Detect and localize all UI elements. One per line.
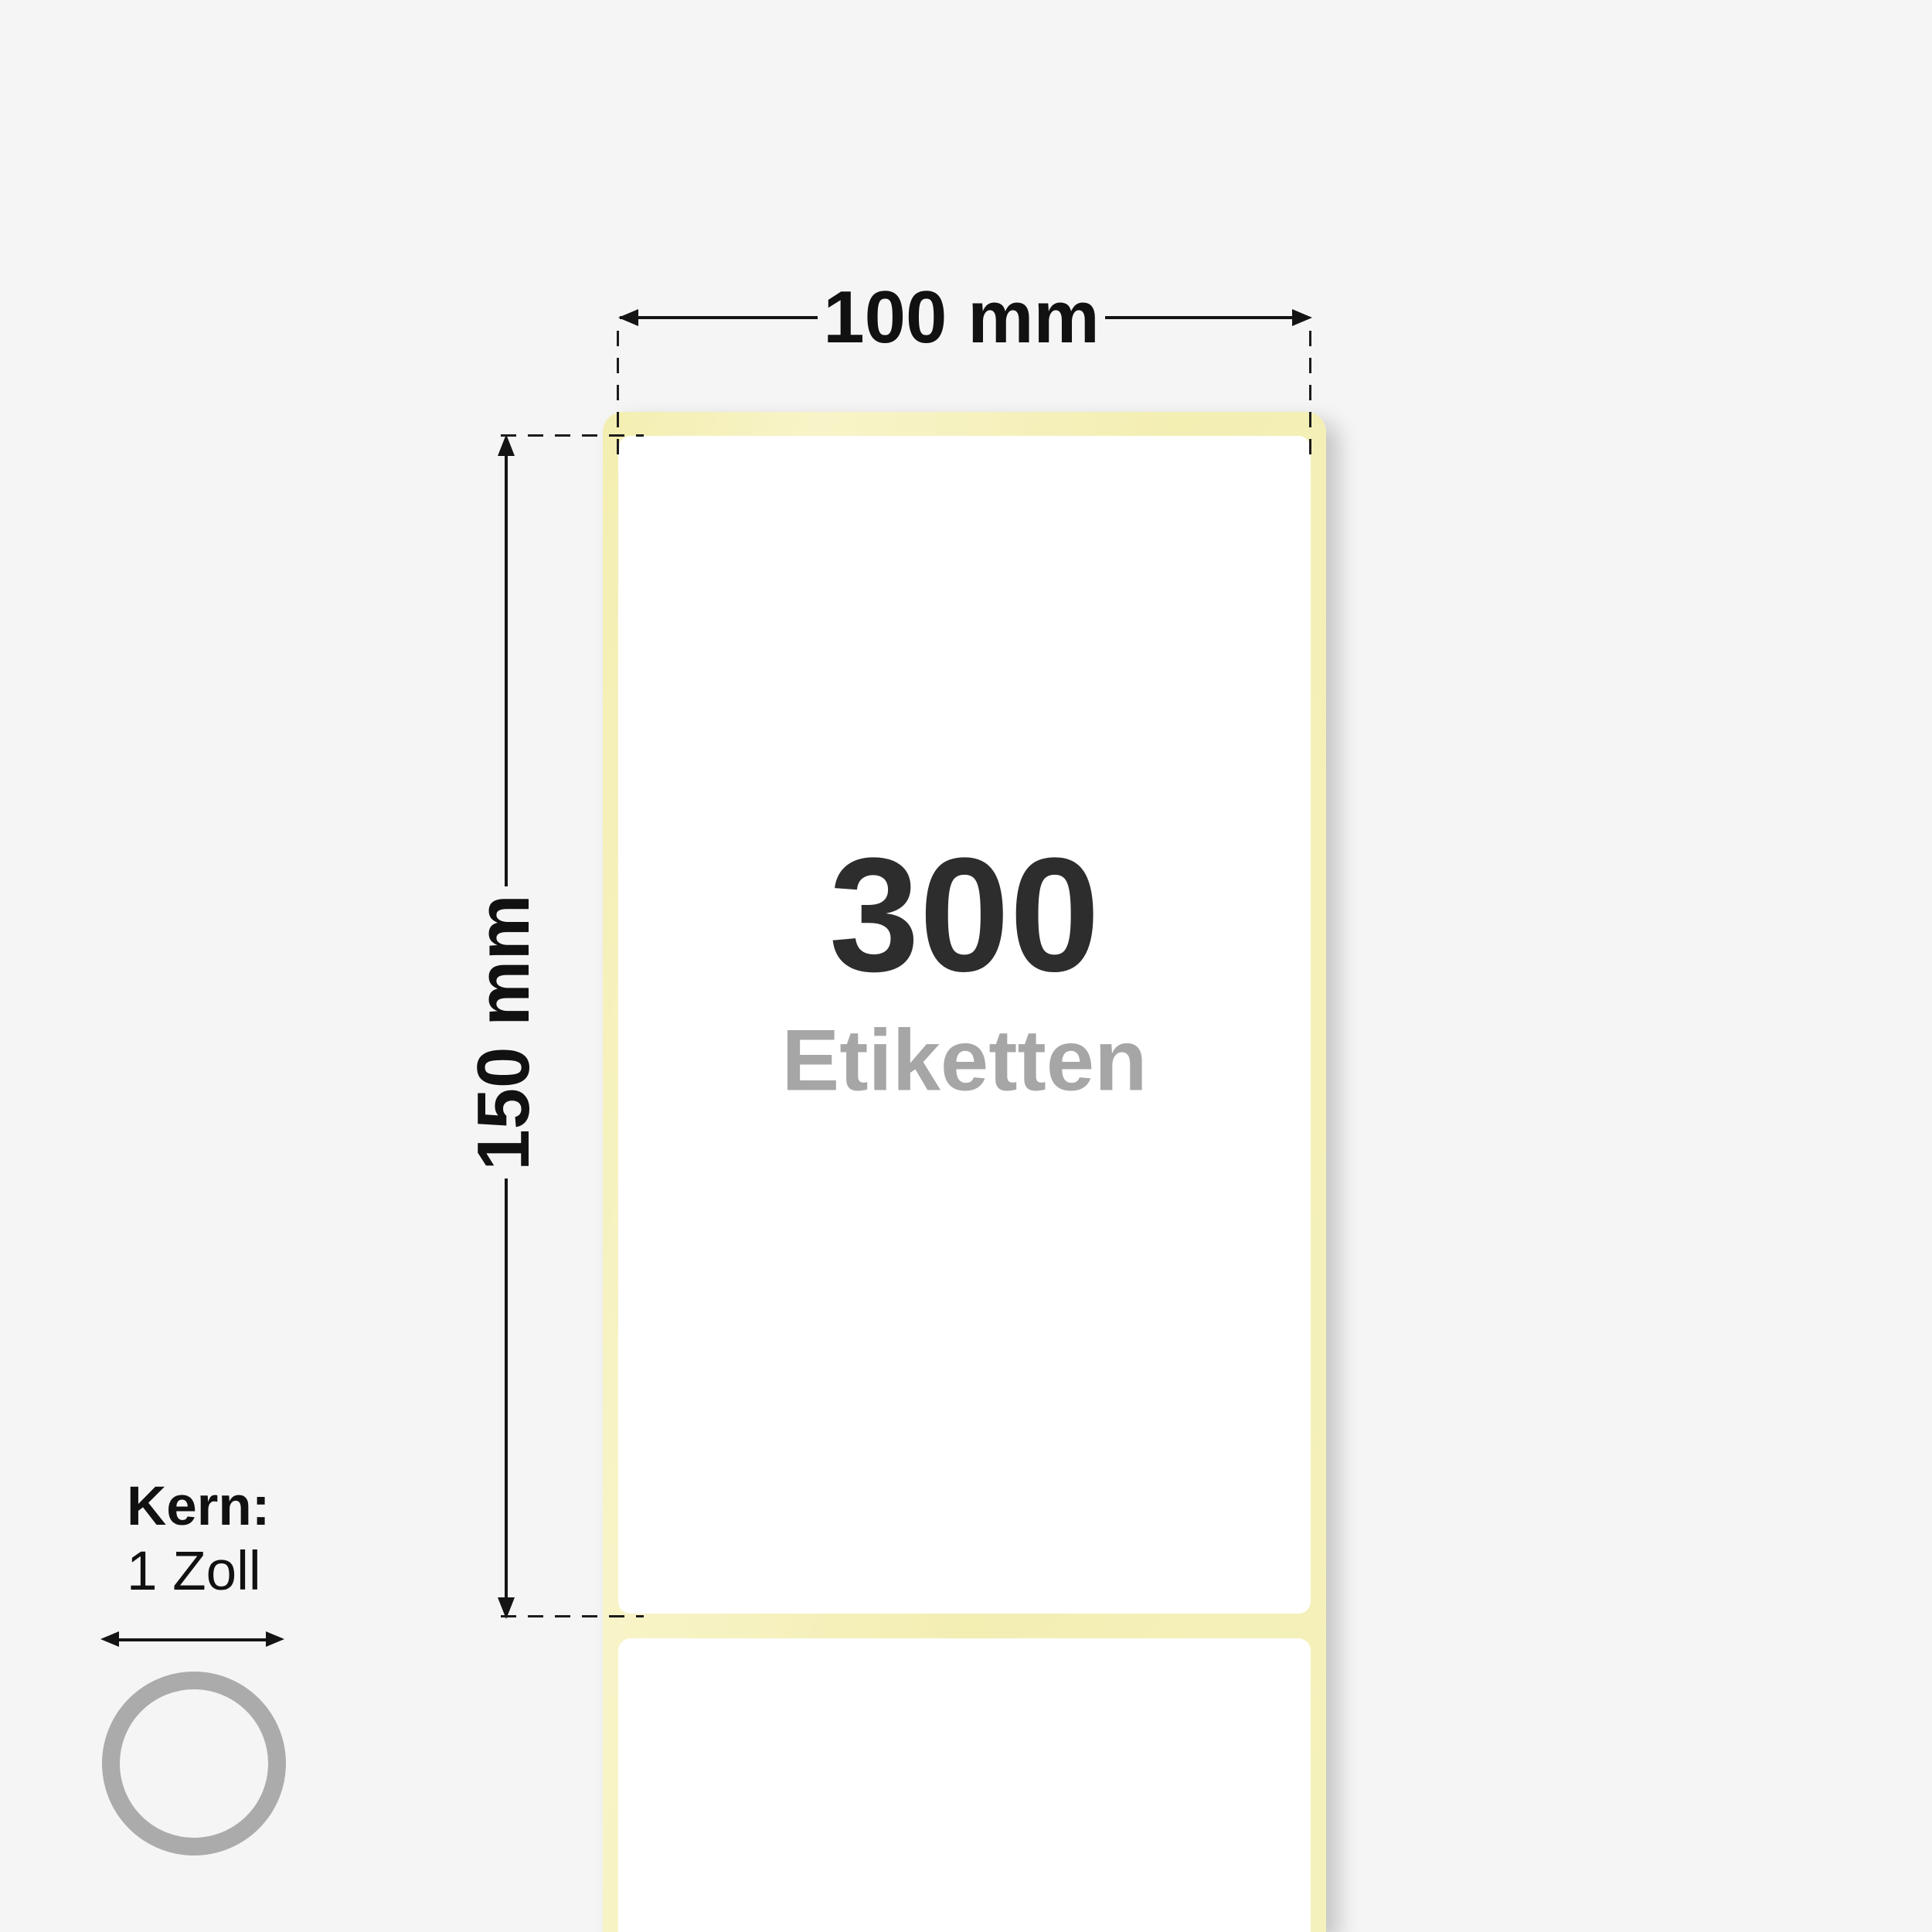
height-dimension-label: 150 mm [461, 894, 546, 1171]
width-arrow-right-icon [1292, 309, 1312, 326]
width-dimension-line-right [1105, 316, 1292, 319]
core-arrow-left-icon [100, 1631, 119, 1647]
core-size: 1 Zoll [127, 1539, 270, 1604]
label-front: 300 Etiketten [618, 436, 1311, 1614]
width-dimension-line-left [620, 316, 818, 319]
width-dimension-label: 100 mm [823, 275, 1100, 360]
core-ring-icon [102, 1672, 286, 1855]
height-arrow-up-icon [498, 434, 515, 456]
width-extension-line-right [1309, 331, 1311, 457]
core-label: Kern: 1 Zoll [127, 1475, 270, 1604]
core-diameter-line [116, 1638, 269, 1641]
label-count: 300 [829, 821, 1100, 1009]
width-extension-line-left [617, 331, 619, 457]
label-count-word: Etiketten [782, 1011, 1148, 1111]
height-dimension-line-top [505, 451, 508, 886]
height-extension-line-bottom [501, 1615, 644, 1617]
core-arrow-right-icon [266, 1631, 284, 1647]
width-arrow-left-icon [618, 309, 638, 326]
label-roll-illustration: 300 Etiketten 100 mm 150 mm Kern: 1 Zoll [0, 0, 1932, 1932]
height-extension-line-top [501, 434, 644, 437]
label-next [618, 1638, 1311, 1932]
core-title: Kern: [127, 1475, 270, 1539]
height-dimension-line-bottom [505, 1179, 508, 1602]
